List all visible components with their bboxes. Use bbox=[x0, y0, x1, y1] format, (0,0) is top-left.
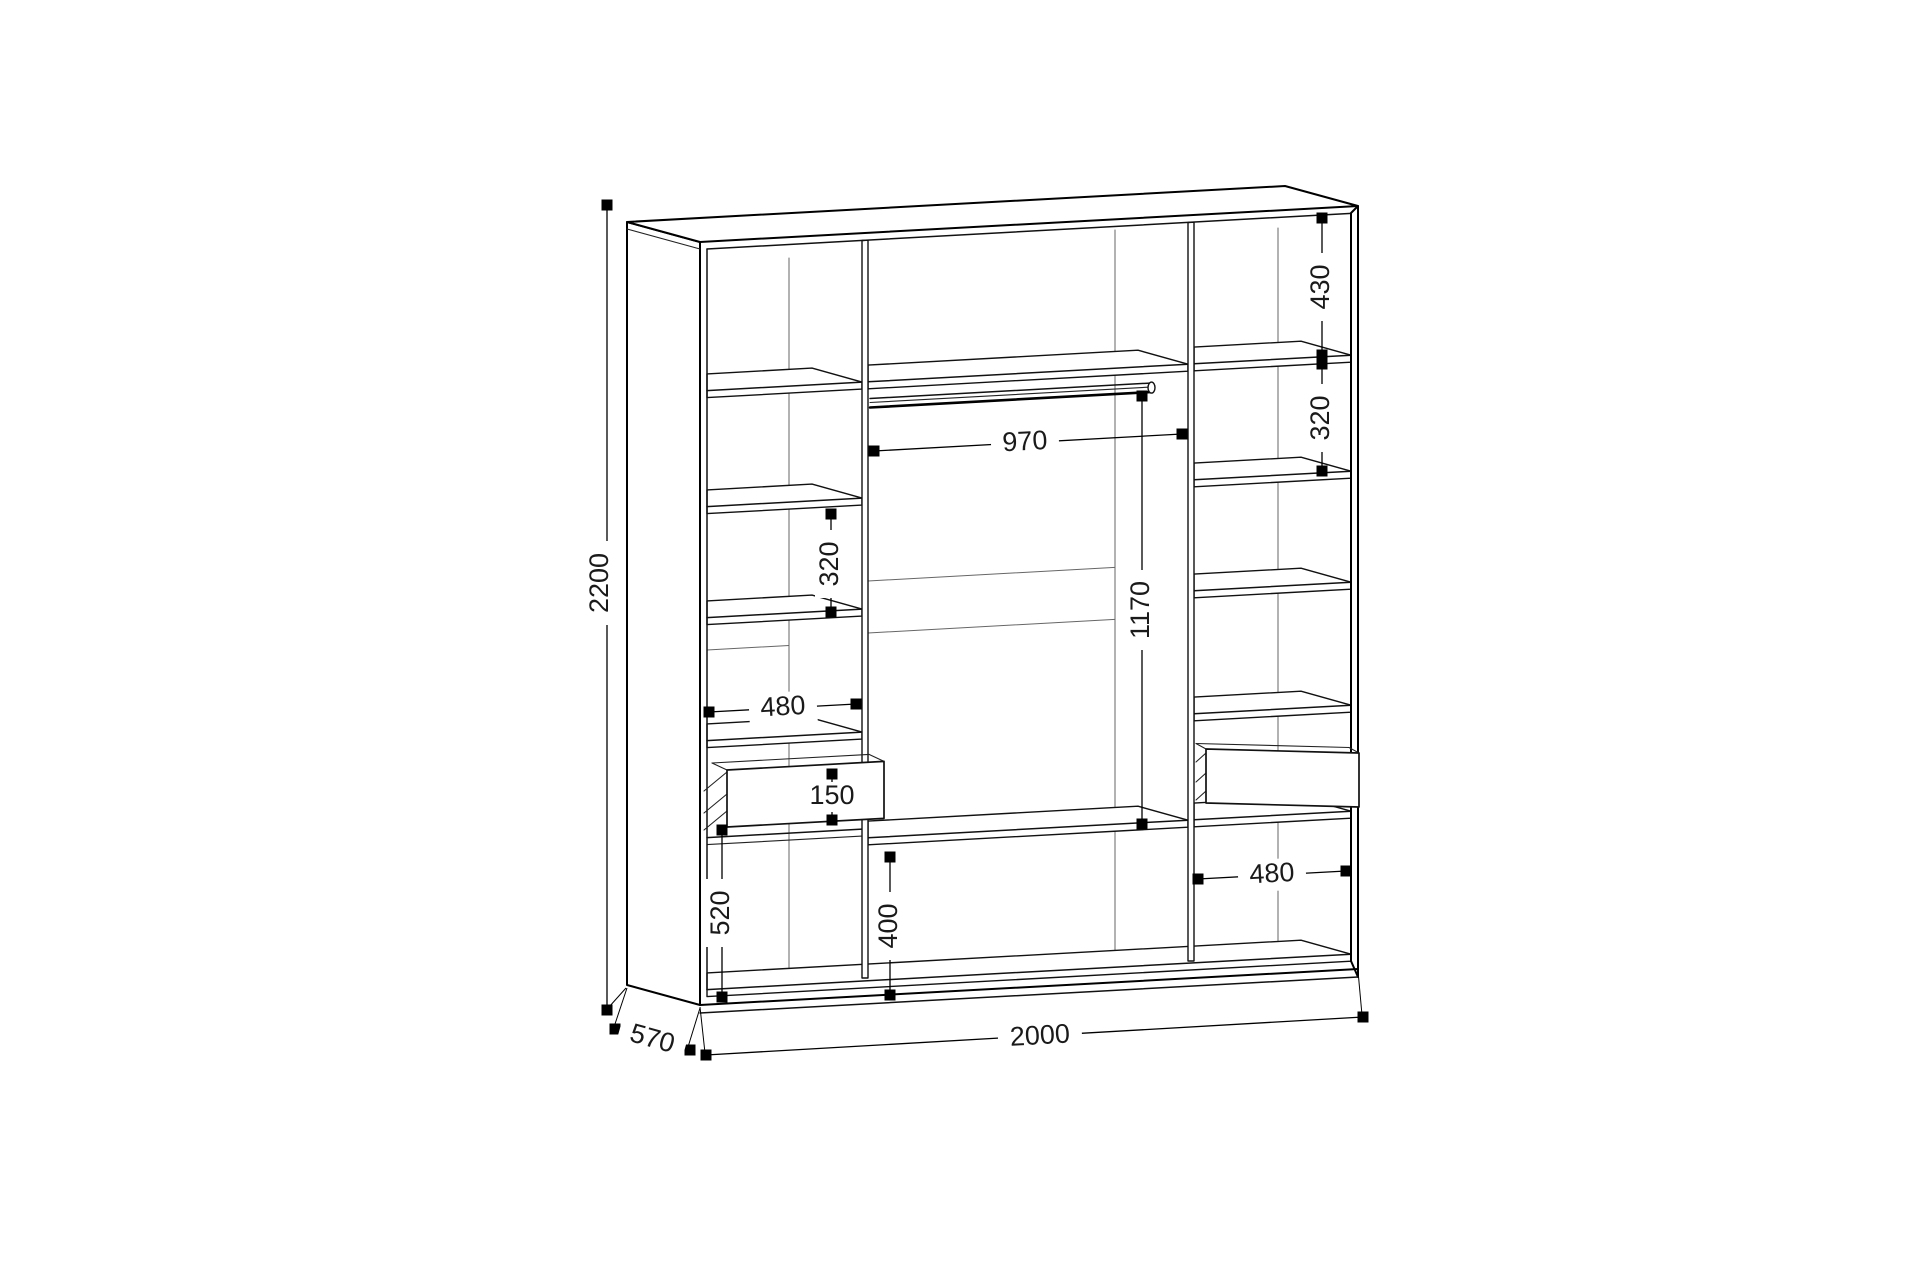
dim-label-970: 970 bbox=[1002, 425, 1049, 457]
dim-left-section-width: 480 bbox=[704, 689, 862, 726]
right-edge bbox=[1351, 206, 1358, 977]
dim-label-480-right: 480 bbox=[1249, 857, 1296, 889]
dim-label-320-left: 320 bbox=[814, 541, 844, 586]
dim-overall-height: 2200 bbox=[584, 200, 626, 1016]
dim-label-320-right: 320 bbox=[1305, 395, 1335, 440]
dim-right-top-section: 430 bbox=[1305, 213, 1338, 361]
left-side-panel bbox=[627, 222, 700, 1005]
dim-label-400: 400 bbox=[873, 903, 903, 948]
drawing-canvas: 2200 2000 570 970 bbox=[0, 0, 1920, 1277]
dim-rod-to-shelf-height: 1170 bbox=[1125, 391, 1159, 830]
wardrobe-technical-drawing: 2200 2000 570 970 bbox=[0, 0, 1920, 1277]
dim-label-2200: 2200 bbox=[584, 553, 614, 613]
right-drawer-open bbox=[1196, 744, 1359, 808]
bottom-panel bbox=[707, 940, 1351, 996]
dim-label-1170: 1170 bbox=[1125, 581, 1155, 639]
dim-right-section-width: 480 bbox=[1193, 856, 1352, 893]
dim-label-2000: 2000 bbox=[1009, 1018, 1071, 1051]
dim-right-shelf-spacing: 320 bbox=[1305, 359, 1338, 477]
dim-label-520: 520 bbox=[705, 890, 735, 935]
dim-label-480-left: 480 bbox=[760, 690, 807, 722]
right-drawer-front bbox=[1206, 749, 1359, 807]
dim-label-570: 570 bbox=[627, 1018, 678, 1059]
dim-label-430: 430 bbox=[1305, 264, 1335, 309]
rod-end-cap bbox=[1148, 382, 1155, 393]
dim-rod-length: 970 bbox=[869, 424, 1188, 461]
dim-label-150: 150 bbox=[809, 780, 854, 810]
